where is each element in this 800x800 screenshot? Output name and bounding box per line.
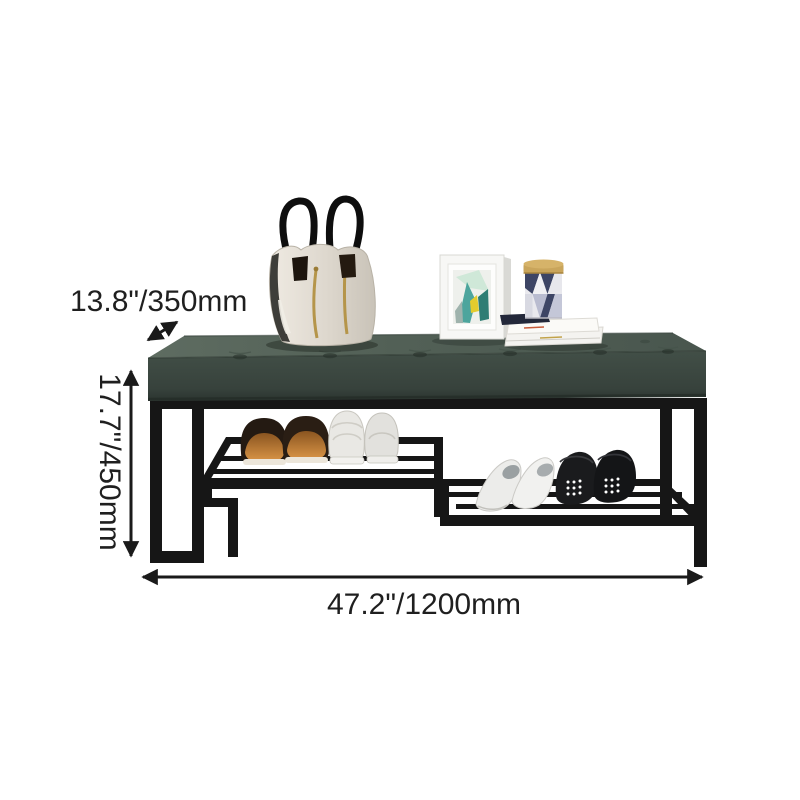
book-spine-text	[524, 327, 544, 328]
product-dimension-image: 13.8"/350mm 17.7"/450mm 47.2"/1200mm	[0, 0, 800, 800]
step-bracket	[202, 498, 238, 507]
height-label: 17.7"/450mm	[93, 373, 126, 550]
canister-lid-top	[524, 260, 564, 269]
photo-frame	[432, 255, 516, 346]
width-label: 47.2"/1200mm	[327, 588, 521, 621]
lower-shelf-left-post	[440, 486, 449, 518]
upper-shelf-front-bar	[202, 478, 443, 489]
step-bracket	[228, 507, 238, 557]
lower-shelf-front-bar	[440, 515, 707, 526]
canister-pattern	[525, 272, 562, 318]
book-spine-text	[540, 337, 562, 338]
handle-tab	[292, 256, 308, 281]
seat-front	[148, 351, 706, 401]
upper-shelf-slat	[209, 469, 442, 474]
right-inner-post	[660, 409, 672, 515]
left-leg-foot	[150, 551, 204, 563]
canister	[524, 260, 564, 319]
frame-art	[453, 270, 491, 324]
left-leg	[150, 409, 162, 563]
depth-label: 13.8"/350mm	[70, 285, 247, 318]
zipper-pull	[314, 267, 319, 272]
right-leg	[694, 409, 707, 567]
seat-cushion	[148, 333, 706, 401]
handle-tab	[339, 254, 356, 278]
bench-diagram-svg: 13.8"/350mm 17.7"/450mm 47.2"/1200mm	[0, 0, 800, 800]
left-leg	[192, 409, 204, 563]
